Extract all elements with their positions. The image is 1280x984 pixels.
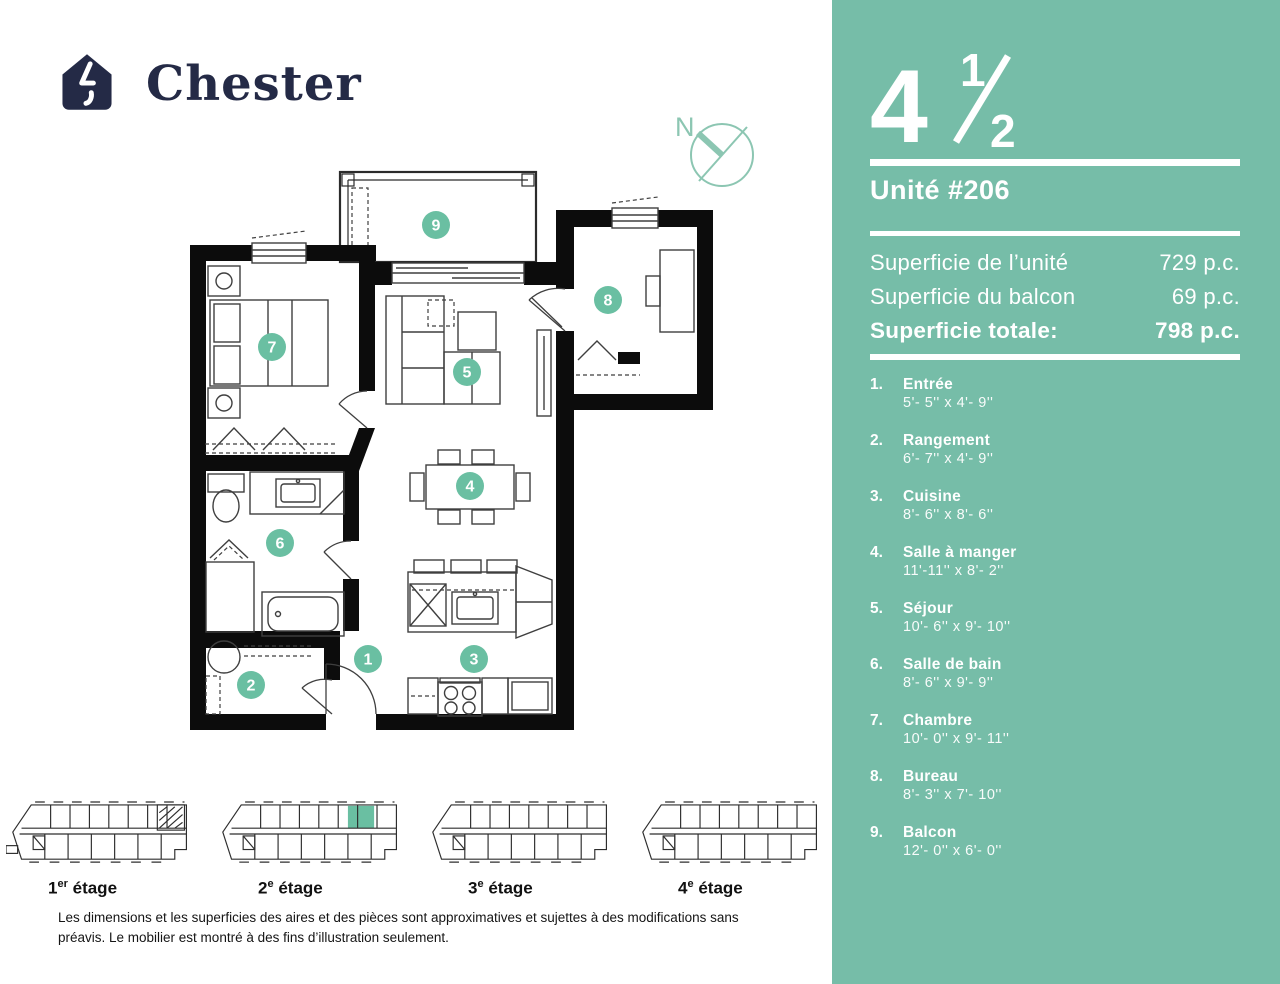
area-row-unit: Superficie de l’unité 729 p.c. <box>870 246 1240 280</box>
closet-hanger-icon <box>578 341 616 360</box>
floor-1-thumbnail: 1er étage <box>6 794 200 899</box>
sliding-door <box>392 263 524 283</box>
unit-number-label: Unité #206 <box>870 175 1240 206</box>
desk-chair <box>646 276 660 306</box>
bathtub <box>262 592 344 636</box>
svg-text:6: 6 <box>276 536 285 553</box>
divider-bar <box>870 354 1240 360</box>
floor-1-label: 1er étage <box>48 878 200 899</box>
room-list-item: 8. Bureau 8'- 3'' x 7'- 10'' <box>870 767 1240 804</box>
compass-n-label: N <box>675 112 695 142</box>
unit-type-fraction: 1 2 <box>944 46 1020 150</box>
disclaimer-text: Les dimensions et les superficies des ai… <box>58 908 764 947</box>
room-list-item: 4. Salle à manger 11'-11'' x 8'- 2'' <box>870 543 1240 580</box>
area-label: Superficie de l’unité <box>870 250 1068 276</box>
room-list-item: 9. Balcon 12'- 0'' x 6'- 0'' <box>870 823 1240 860</box>
area-value: 798 p.c. <box>1155 318 1240 344</box>
svg-text:2: 2 <box>247 678 256 695</box>
svg-text:1: 1 <box>364 652 373 669</box>
area-table: Superficie de l’unité 729 p.c. Superfici… <box>870 246 1240 348</box>
svg-text:3: 3 <box>470 652 479 669</box>
living-furniture <box>386 296 551 416</box>
area-value: 729 p.c. <box>1159 250 1240 276</box>
north-arrow-icon: N <box>675 112 753 186</box>
desk <box>660 250 694 332</box>
room-list-item: 7. Chambre 10'- 0'' x 9'- 11'' <box>870 711 1240 748</box>
island <box>408 572 516 632</box>
stove <box>438 682 482 716</box>
room-list-item: 5. Séjour 10'- 6'' x 9'- 10'' <box>870 599 1240 636</box>
svg-text:7: 7 <box>268 340 277 357</box>
coffee-table <box>458 312 496 350</box>
area-value: 69 p.c. <box>1172 284 1240 310</box>
svg-text:4: 4 <box>466 479 475 496</box>
walls <box>190 210 713 730</box>
unit-info-panel: 4 1 2 Unité #206 Superficie de l’unité 7… <box>832 0 1280 984</box>
svg-text:1: 1 <box>960 46 986 96</box>
shower <box>206 562 254 632</box>
unit-floor-plan: N <box>160 100 780 760</box>
closet-hanger-icon <box>213 428 255 450</box>
highlighted-unit <box>348 806 374 828</box>
divider-bar <box>870 231 1240 236</box>
floor-4-thumbnail: 4e étage <box>636 794 830 899</box>
unit-type-whole: 4 <box>870 65 930 150</box>
kitchen-furniture <box>408 560 552 716</box>
sofa <box>386 296 444 404</box>
svg-text:2: 2 <box>990 105 1016 150</box>
floorplan-sheet: Chester N <box>0 0 1280 984</box>
floor-3-label: 3e étage <box>468 878 620 899</box>
room-list-item: 6. Salle de bain 8'- 6'' x 9'- 9'' <box>870 655 1240 692</box>
vanity <box>250 472 344 514</box>
area-row-total: Superficie totale: 798 p.c. <box>870 314 1240 348</box>
svg-text:8: 8 <box>604 293 613 310</box>
room-list: 1. Entrée 5'- 5'' x 4'- 9'' 2. Rangement… <box>870 375 1240 860</box>
floor-2-label: 2e étage <box>258 878 410 899</box>
svg-text:5: 5 <box>463 365 472 382</box>
area-row-balcony: Superficie du balcon 69 p.c. <box>870 280 1240 314</box>
fridge <box>508 678 552 714</box>
floor-2-thumbnail: 2e étage <box>216 794 410 899</box>
room-list-item: 2. Rangement 6'- 7'' x 4'- 9'' <box>870 431 1240 468</box>
chester-house-icon <box>55 50 119 114</box>
floor-4-label: 4e étage <box>678 878 830 899</box>
area-label: Superficie du balcon <box>870 284 1075 310</box>
unit-type-title: 4 1 2 <box>870 46 1240 150</box>
room-list-item: 3. Cuisine 8'- 6'' x 8'- 6'' <box>870 487 1240 524</box>
room-list-item: 1. Entrée 5'- 5'' x 4'- 9'' <box>870 375 1240 412</box>
svg-text:9: 9 <box>432 218 441 235</box>
floor-thumbnails: 1er étage 2e étage <box>6 794 830 899</box>
area-label: Superficie totale: <box>870 318 1058 344</box>
floor-3-thumbnail: 3e étage <box>426 794 620 899</box>
